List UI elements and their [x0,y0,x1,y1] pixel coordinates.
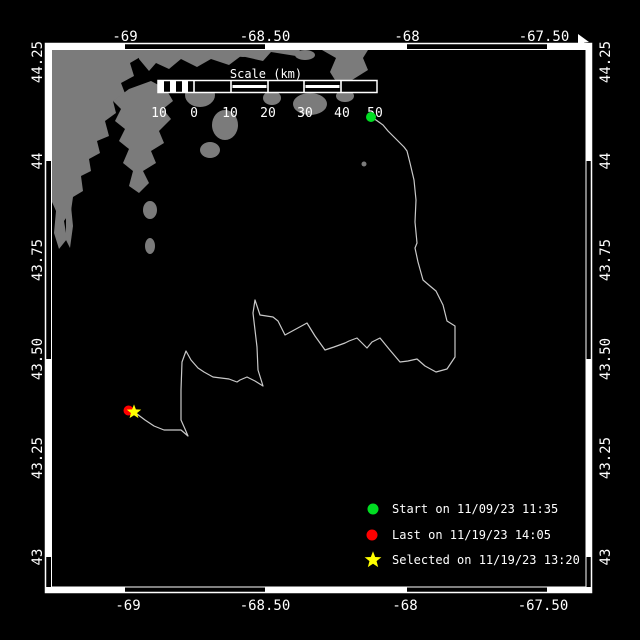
axis-label-right: 44.25 [598,41,614,83]
axis-label-bottom: -68.50 [240,598,291,614]
land-island [143,201,157,219]
axis-label-left: 43.50 [30,338,46,380]
legend-start-icon [368,504,379,515]
legend-start-label: Start on 11/09/23 11:35 [392,502,558,516]
axis-label-left: 43 [30,549,46,566]
axis-label-top: -69 [112,29,137,45]
axis-label-left: 44 [30,153,46,170]
axis-label-right: 44 [598,153,614,170]
land-island [145,238,155,254]
scale-tick-label: 10 [222,106,238,121]
axis-label-left: 43.75 [30,239,46,281]
legend-last-label: Last on 11/19/23 14:05 [392,528,551,542]
map-canvas[interactable]: -69 -68.50 -68 -67.50 -69 -68.50 -68 -67… [0,0,640,640]
legend-last-icon [367,530,378,541]
axis-label-bottom: -69 [115,598,140,614]
axis-label-left: 43.25 [30,437,46,479]
start-marker[interactable] [366,112,376,122]
scale-bar-title: Scale (km) [230,67,302,81]
axis-label-right: 43.25 [598,437,614,479]
axis-label-left: 44.25 [30,41,46,83]
axis-label-right: 43.50 [598,338,614,380]
axis-label-bottom: -67.50 [518,598,569,614]
legend-selected-label: Selected on 11/19/23 13:20 [392,553,580,567]
axis-label-bottom: -68 [392,598,417,614]
scale-tick-label: 10 [151,106,167,121]
axis-label-top: -68 [394,29,419,45]
legend: Start on 11/09/23 11:35 Last on 11/19/23… [365,502,580,567]
scale-tick-label: 30 [297,106,313,121]
axis-label-top: -68.50 [240,29,291,45]
land-island [362,162,367,167]
land-island [295,50,315,60]
axis-label-top: -67.50 [519,29,570,45]
axis-label-right: 43 [598,549,614,566]
scale-tick-label: 20 [260,106,276,121]
scale-tick-label: 0 [190,106,198,121]
scale-tick-label: 40 [334,106,350,121]
land-island [200,142,220,158]
land-island [235,49,251,57]
map-window: -69 -68.50 -68 -67.50 -69 -68.50 -68 -67… [0,0,640,640]
axis-label-right: 43.75 [598,239,614,281]
